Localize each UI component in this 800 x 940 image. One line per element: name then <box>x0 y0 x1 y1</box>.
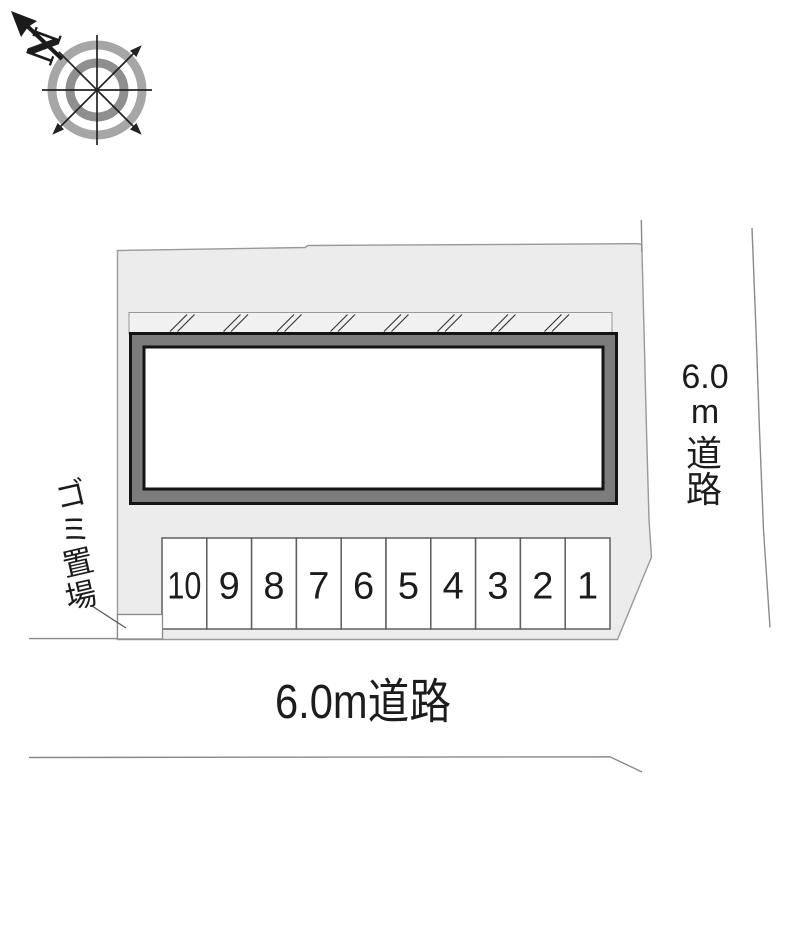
right-road-label-line: 道 <box>686 433 722 474</box>
parking-row: 10 9 8 7 6 5 4 3 2 1 <box>162 538 610 629</box>
garbage-area-label: ゴ ミ 置 場 <box>52 474 100 616</box>
parking-space-number: 9 <box>219 566 240 608</box>
parking-space-number: 10 <box>167 566 201 608</box>
right-road-label-line: 6.0 <box>681 358 728 396</box>
boundary-extension-line <box>641 220 642 252</box>
building <box>131 334 617 504</box>
parking-space-number: 8 <box>263 566 284 608</box>
parking-space-number: 1 <box>577 566 598 608</box>
right-road-line <box>752 228 770 628</box>
bottom-road-far-line <box>29 757 642 772</box>
building-inner-wall <box>144 347 603 489</box>
right-road-label-line: 路 <box>686 469 722 510</box>
compass-rose: N <box>11 11 152 145</box>
site-plan-page: N <box>0 0 800 940</box>
parking-space-number: 4 <box>443 566 464 608</box>
parking-space-number: 2 <box>532 566 553 608</box>
hatched-strip-outline <box>129 313 612 335</box>
parking-space-number: 5 <box>398 566 419 608</box>
hatched-strip <box>129 313 612 335</box>
parking-space-number: 6 <box>353 566 374 608</box>
bottom-road-label: 6.0m道路 <box>275 676 451 729</box>
parking-space-number: 3 <box>487 566 508 608</box>
garbage-label-char: 場 <box>62 575 100 616</box>
right-road-label: 6.0 m 道 路 <box>681 358 728 510</box>
site-plan-canvas: N <box>0 0 800 940</box>
right-road-label-line: m <box>691 393 719 431</box>
parking-space-number: 7 <box>308 566 329 608</box>
